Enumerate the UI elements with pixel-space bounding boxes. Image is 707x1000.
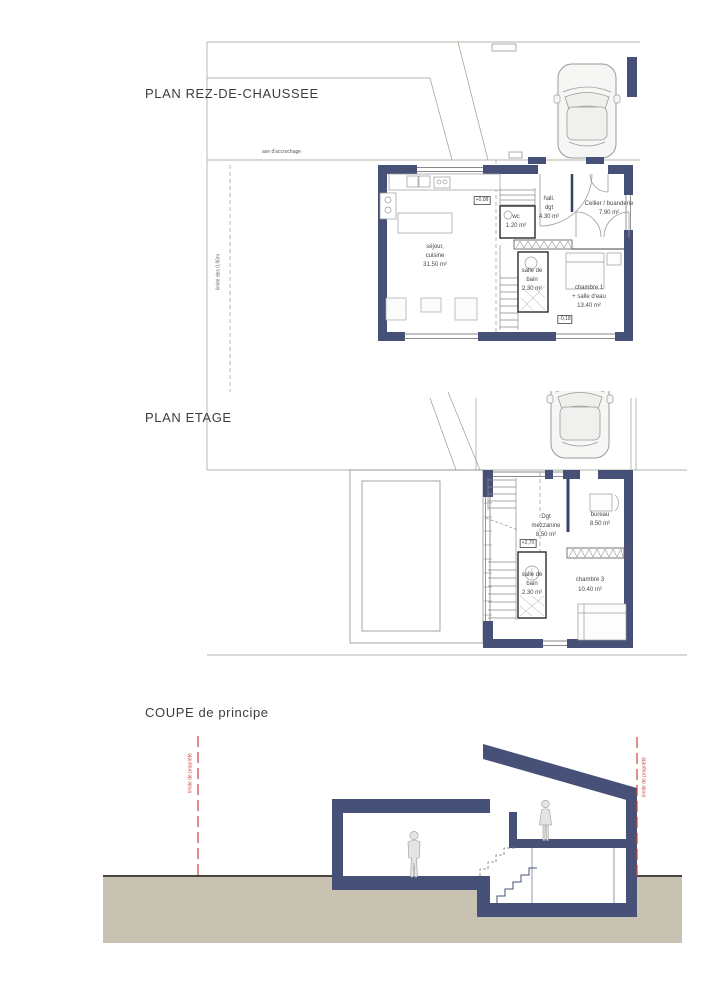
etage-partitions <box>567 479 624 558</box>
mezzanine-parapet <box>509 812 517 848</box>
room-label: 8.50 m² <box>536 532 556 538</box>
architectural-drawing-sheet: PLAN REZ-DE-CHAUSSEE PLAN ETAGE COUPE de… <box>0 0 707 1000</box>
room-label: dgt <box>545 205 553 211</box>
mezzanine-slab <box>516 839 626 848</box>
room-label: salle de <box>522 572 543 578</box>
wc-room <box>500 206 535 238</box>
room-label: wc <box>512 214 519 220</box>
sunken-floor-slab <box>477 903 637 917</box>
section-stairs-hidden <box>480 848 516 876</box>
right-wall <box>626 792 637 917</box>
room-label: + salle d'eau <box>572 294 606 300</box>
flat-roof-slab <box>332 799 490 813</box>
car-top-icon <box>547 364 613 458</box>
room-label: salle de <box>522 268 543 274</box>
room-label: chambre 1 <box>575 285 603 291</box>
room-label: hall. <box>543 196 554 202</box>
room-label: 7.90 m² <box>599 210 619 216</box>
terrace-outline <box>350 470 483 643</box>
etage-plan-title: PLAN ETAGE <box>145 410 232 425</box>
room-label: 4.30 m² <box>539 214 559 220</box>
drawing-linework <box>0 0 707 1000</box>
room-label: mezzanine <box>531 523 560 529</box>
room-label: 2.30 m² <box>522 286 542 292</box>
rez-plan-title: PLAN REZ-DE-CHAUSSEE <box>145 86 319 101</box>
room-label: 2.30 m² <box>522 590 542 596</box>
property-limit-label-right: limite de propriété <box>643 757 648 797</box>
roof-slope <box>483 744 637 803</box>
room-label: bureau <box>591 512 610 518</box>
room-label: bain <box>526 581 537 587</box>
level-badge-chambre: -0,18 <box>557 315 572 324</box>
sunken-interior <box>489 876 627 906</box>
property-limit-label-left: limite de propriété <box>189 753 194 793</box>
room-label: 10.40 m² <box>578 587 602 593</box>
person-standing-icon <box>408 831 420 877</box>
person-mezzanine-icon <box>540 800 552 840</box>
room-label: 1.20 m² <box>506 223 526 229</box>
room-label: séjour, <box>426 244 444 250</box>
boundary-wall-mark <box>627 57 637 97</box>
axe-accrochage-label: axe d'accrochage <box>262 150 301 155</box>
bed-chambre1 <box>566 253 621 289</box>
bed-chambre3 <box>578 604 626 640</box>
room-label: 31.50 m² <box>423 262 447 268</box>
room-label: Dgt <box>541 514 550 520</box>
room-label: bain <box>526 277 537 283</box>
staircase-etage <box>486 478 518 620</box>
level-badge-etage: +2,70 <box>520 539 537 548</box>
sejour-furniture <box>386 298 477 320</box>
survey-markers <box>492 44 522 158</box>
room-label: 13.40 m² <box>577 303 601 309</box>
room-label: cuisine <box>426 253 445 259</box>
room-label: Cellier / buanderie <box>585 201 634 207</box>
room-label: 8.50 m² <box>590 521 610 527</box>
coupe-title: COUPE de principe <box>145 705 269 720</box>
level-badge-rez: +0,08 <box>474 196 491 205</box>
ground-floor-slab <box>332 876 489 890</box>
rez-limit-dashed-lines <box>230 160 496 392</box>
limite-090-label: limite des 0,90m <box>217 254 222 290</box>
desk-bureau <box>590 494 618 511</box>
car-top-icon <box>554 64 620 158</box>
room-label: chambre 3 <box>576 577 604 583</box>
